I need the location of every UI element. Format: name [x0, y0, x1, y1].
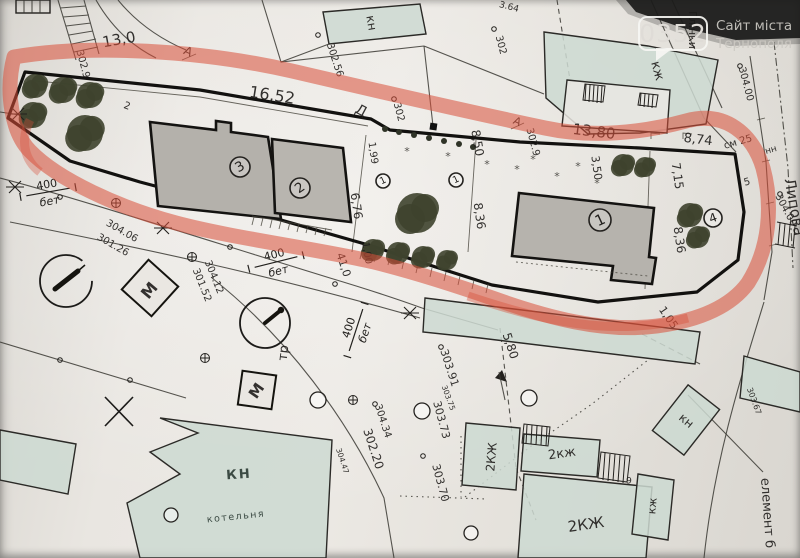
- hedge-dot: [396, 129, 402, 135]
- utility-circle-needle: [40, 255, 92, 307]
- circle-cross-mark: [349, 396, 358, 405]
- transformer-circle: [240, 298, 290, 348]
- map-label: 8,50: [468, 129, 486, 158]
- map-label: 8,74: [683, 131, 714, 149]
- x-cross-mark: [105, 397, 133, 426]
- tree: [22, 74, 48, 99]
- map-label: 9: [626, 477, 632, 487]
- elevation-point-dot: [333, 282, 338, 287]
- svg-text:400: 400: [339, 316, 358, 340]
- map-svg: ******** 13,0302.92А16,52Д3028,50А302.91…: [0, 0, 800, 558]
- hedge-dot: [426, 135, 432, 141]
- map-label: 16,52: [248, 82, 296, 108]
- map-label: елемент б: [757, 477, 777, 548]
- map-label: 8,36: [671, 226, 689, 254]
- map-label: 3,50: [588, 155, 604, 181]
- svg-text:бет: бет: [39, 193, 61, 209]
- survey-point-square: [429, 123, 437, 131]
- map-label: кн: [363, 14, 379, 31]
- neighbour-buildings: [0, 4, 800, 558]
- map-label: 2КЖ: [483, 442, 499, 472]
- circled-number: 4: [704, 209, 722, 227]
- map-label: 7,15: [669, 162, 687, 190]
- building-boilerhouse-kn: [127, 418, 332, 558]
- circled-number: 3: [230, 157, 250, 177]
- svg-text:бет: бет: [356, 321, 375, 345]
- building-topright-partial: [740, 356, 800, 412]
- circled-number: 1: [376, 174, 390, 188]
- watermark-site-line1: Сайт міста: [716, 17, 792, 35]
- road-surface-label: 400бет: [334, 299, 380, 362]
- hatched-box-topleft: [16, 0, 50, 13]
- tree: [686, 226, 710, 249]
- tree: [677, 203, 703, 228]
- map-label: 303.70: [429, 463, 452, 504]
- manhole-circle: [521, 390, 537, 406]
- map-label: КН: [226, 467, 252, 484]
- building-3-shape: [150, 121, 281, 219]
- elevation-point-dot: [316, 33, 321, 38]
- paving-mark: *: [514, 163, 520, 176]
- paving-mark: *: [445, 150, 451, 163]
- elevation-point-dot: [439, 345, 444, 350]
- map-label: кж: [645, 497, 659, 515]
- circle-cross-mark: [188, 253, 197, 262]
- building-1-shape: [512, 193, 656, 284]
- map-label: 302: [391, 101, 407, 122]
- tree: [395, 193, 439, 234]
- tree: [65, 115, 105, 152]
- tree: [49, 77, 78, 104]
- survey-cross-mark: [6, 181, 24, 193]
- map-label: 8,36: [471, 202, 489, 230]
- map-label: 302: [493, 34, 509, 55]
- watermark-site-line2: Тернополя: [716, 35, 792, 53]
- hedge-dot: [411, 132, 417, 138]
- manhole-circle: [464, 526, 478, 540]
- map-label: 3.64: [498, 0, 520, 15]
- paving-mark: *: [484, 158, 490, 171]
- circled-number: 1: [449, 173, 463, 187]
- watermark-code: 0352: [639, 19, 707, 48]
- paving-mark: *: [575, 160, 581, 173]
- map-label: 2: [122, 100, 132, 113]
- map-label: 5: [743, 176, 752, 188]
- hedge-dot: [456, 141, 462, 147]
- manhole-circle: [310, 392, 326, 408]
- hedge-dot: [382, 126, 388, 132]
- paving-mark: *: [554, 170, 560, 183]
- map-label: 304.47: [334, 447, 351, 475]
- map-label: 303.91: [437, 348, 461, 389]
- map-label: 1,99: [366, 141, 380, 165]
- elevation-point-dot: [492, 27, 497, 32]
- svg-text:бет: бет: [267, 262, 290, 280]
- circled-number: 1: [589, 209, 611, 231]
- watermark-code-badge: 0352: [638, 16, 708, 51]
- building-2-shape: [272, 139, 351, 222]
- tree: [76, 82, 105, 109]
- manhole-circle: [414, 403, 430, 419]
- circle-cross-mark: [201, 354, 210, 363]
- hedge-dot: [441, 138, 447, 144]
- map-label: тр: [276, 344, 293, 362]
- tree: [436, 250, 458, 271]
- paving-mark: *: [404, 145, 410, 158]
- tree: [634, 157, 656, 178]
- elevation-point-dot: [421, 454, 426, 459]
- manhole-circle: [164, 508, 178, 522]
- watermark-site-name: Сайт міста Тернополя: [716, 17, 792, 53]
- scanned-site-plan: ******** 13,0302.92А16,52Д3028,50А302.91…: [0, 0, 800, 558]
- tree: [611, 154, 635, 177]
- building-leftedge-small: [0, 430, 76, 494]
- circled-number: 2: [290, 178, 310, 198]
